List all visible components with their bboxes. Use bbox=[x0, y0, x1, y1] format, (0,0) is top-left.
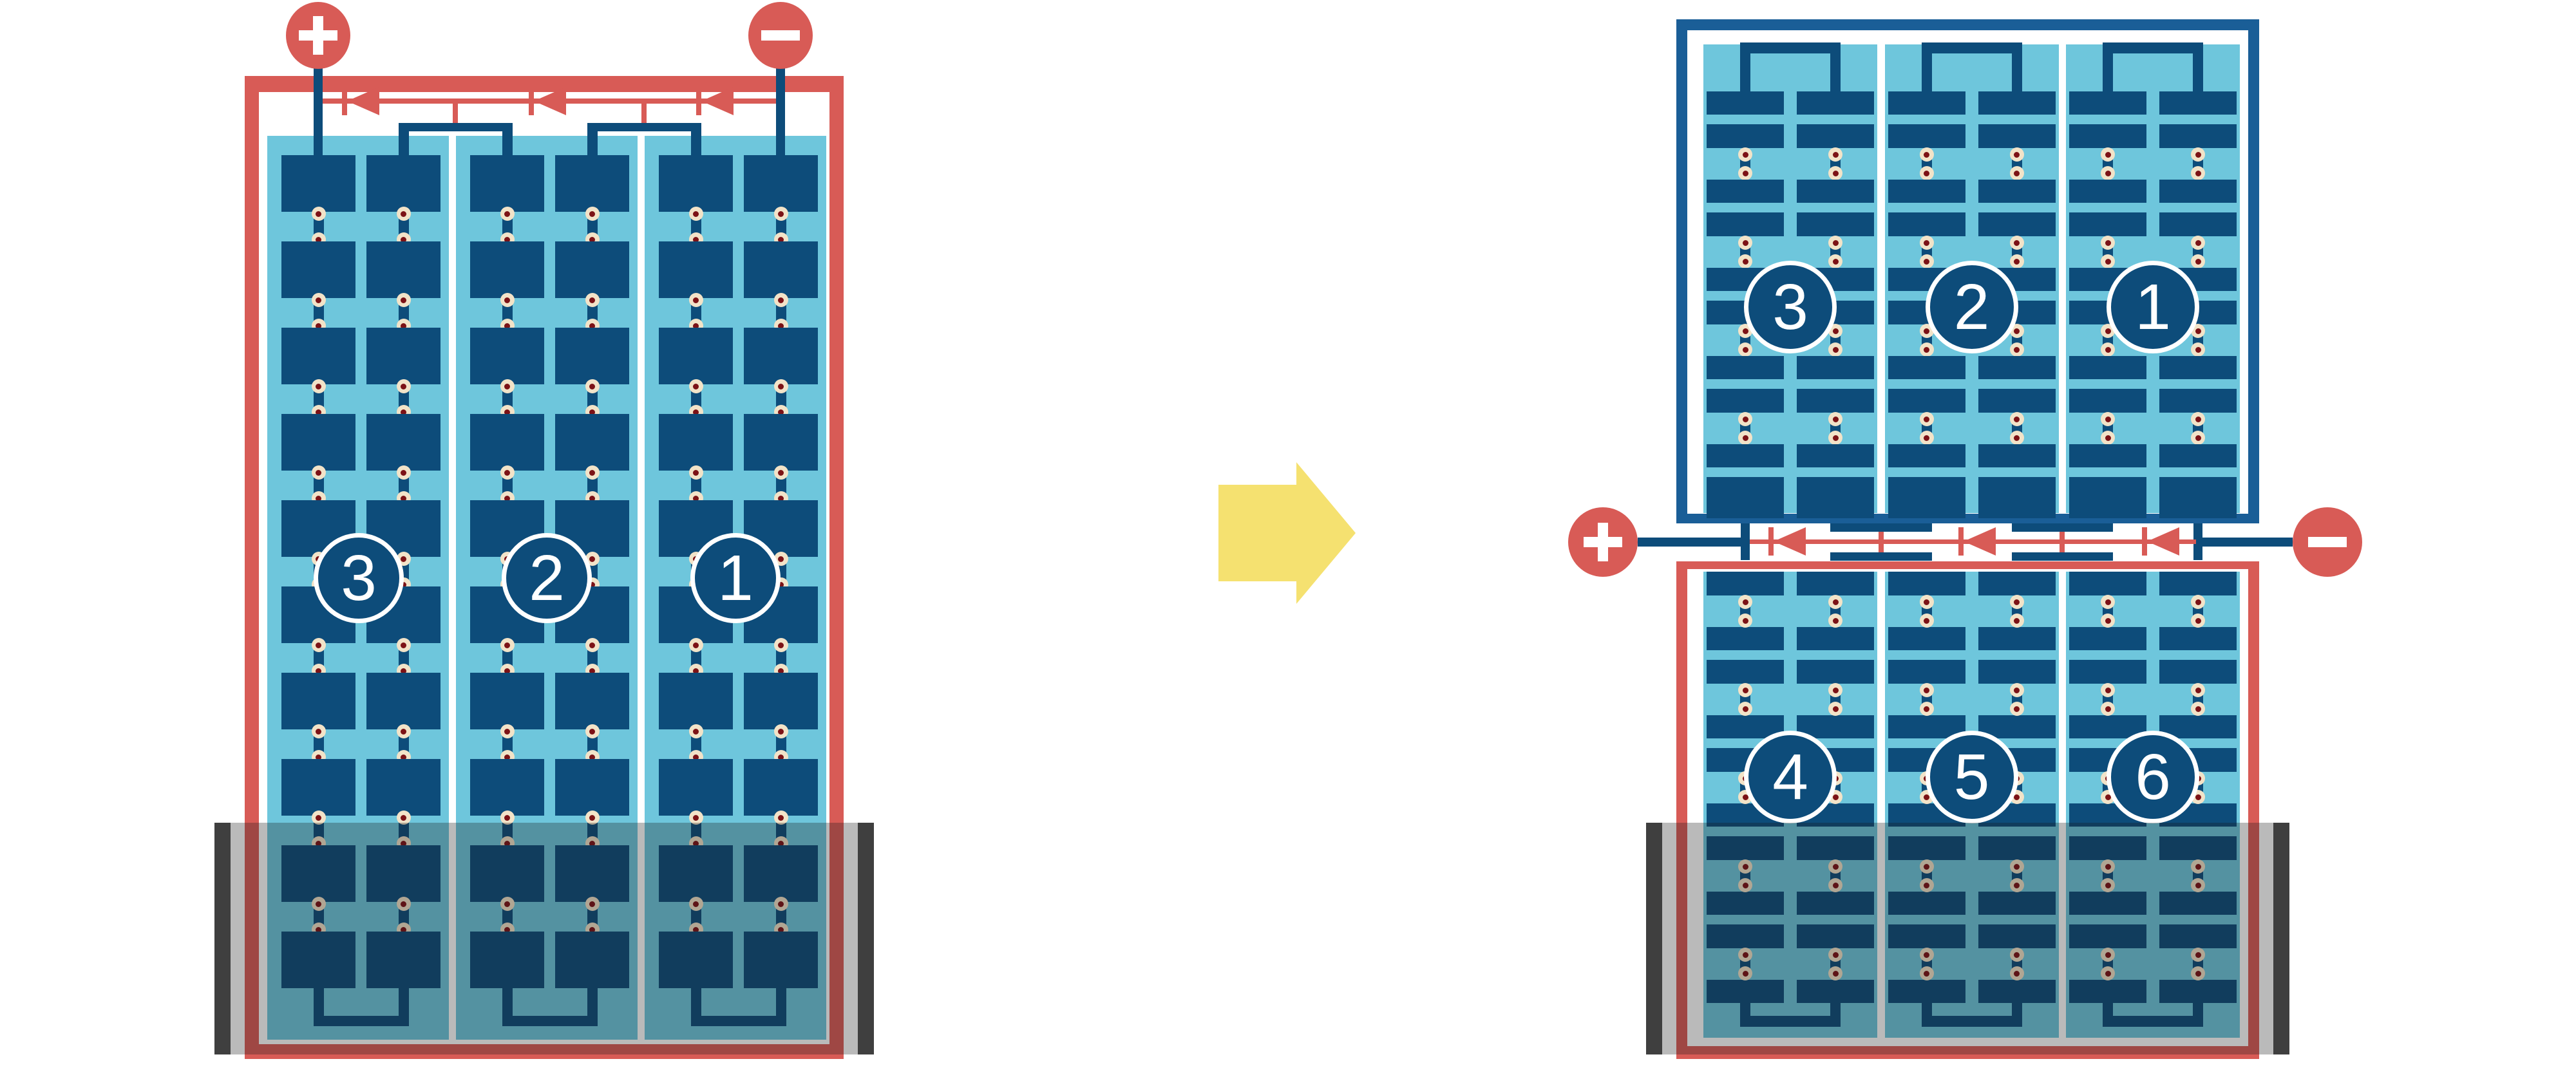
diagram-canvas: 321 321 456 bbox=[0, 0, 2576, 1068]
solar-cell bbox=[1707, 180, 1784, 203]
solar-cell bbox=[366, 673, 440, 729]
solar-cell bbox=[2159, 572, 2237, 595]
solder-dot-core bbox=[1924, 706, 1929, 712]
solar-cell bbox=[1797, 660, 1874, 684]
solar-cell bbox=[1707, 444, 1784, 467]
solar-cell bbox=[1797, 572, 1874, 595]
solar-cell bbox=[470, 241, 544, 298]
diode-triangle-icon bbox=[534, 87, 566, 115]
solar-cell bbox=[1978, 572, 2056, 595]
top-busbar bbox=[587, 123, 701, 131]
solar-cell bbox=[1707, 356, 1784, 379]
solder-dot-core bbox=[589, 642, 595, 648]
solder-dot-core bbox=[2105, 435, 2111, 441]
solar-cell bbox=[1797, 477, 1874, 518]
solder-dot-core bbox=[1924, 688, 1929, 693]
solder-dot-core bbox=[2195, 171, 2201, 176]
solder-dot-core bbox=[401, 297, 406, 303]
solder-dot-core bbox=[2195, 347, 2201, 353]
solder-dot-core bbox=[2014, 259, 2020, 265]
solder-dot-core bbox=[401, 642, 406, 648]
solder-dot-core bbox=[2014, 599, 2020, 605]
solder-dot-core bbox=[1743, 688, 1748, 693]
shadow-band bbox=[1646, 823, 2289, 1054]
shadow-end-cap bbox=[858, 823, 874, 1054]
solar-cell bbox=[2069, 444, 2146, 467]
terminal-lead bbox=[776, 66, 785, 156]
solder-dot-core bbox=[504, 815, 510, 821]
diode-cathode-bar bbox=[2142, 527, 2147, 556]
terminal-sign-bar bbox=[761, 30, 800, 41]
solder-dot-core bbox=[589, 556, 595, 562]
solar-cell bbox=[281, 241, 355, 298]
solder-dot-core bbox=[2195, 259, 2201, 265]
solder-dot-core bbox=[1833, 794, 1839, 800]
solar-cell bbox=[2159, 477, 2237, 518]
solder-dot-core bbox=[778, 815, 784, 821]
diode-cathode-bar bbox=[1768, 527, 1774, 556]
string-number-badge: 1 bbox=[2107, 261, 2199, 353]
diode-triangle-icon bbox=[347, 87, 379, 115]
solar-cell bbox=[1978, 91, 2056, 115]
solder-dot-core bbox=[1743, 347, 1748, 353]
shadow-end-cap bbox=[214, 823, 231, 1054]
solder-dot-core bbox=[401, 729, 406, 735]
solder-dot-core bbox=[1743, 328, 1748, 334]
solder-dot-core bbox=[2105, 688, 2111, 693]
solar-cell bbox=[2069, 627, 2146, 650]
solar-cell bbox=[1888, 180, 1965, 203]
solder-dot-core bbox=[693, 470, 699, 476]
terminal-sign-bar bbox=[1598, 523, 1608, 561]
solder-dot-core bbox=[2014, 706, 2020, 712]
solar-cell bbox=[2159, 124, 2237, 148]
solder-dot-core bbox=[2014, 152, 2020, 158]
solar-cell bbox=[2159, 91, 2237, 115]
solar-cell bbox=[2159, 660, 2237, 684]
terminal-lead bbox=[1638, 538, 1741, 547]
terminal-sign-bar bbox=[313, 16, 323, 55]
module-frame bbox=[1676, 19, 1687, 523]
solar-cell bbox=[1707, 389, 1784, 413]
solar-cell bbox=[1707, 572, 1784, 595]
solar-cell bbox=[555, 673, 629, 729]
solder-dot-core bbox=[2195, 688, 2201, 693]
solder-dot-core bbox=[1924, 171, 1929, 176]
solar-cell bbox=[1707, 627, 1784, 650]
solder-dot-core bbox=[2014, 171, 2020, 176]
string-number-badge: 5 bbox=[1926, 731, 2018, 823]
solder-dot-core bbox=[1924, 152, 1929, 158]
solder-dot-core bbox=[778, 211, 784, 217]
interconnect-tab bbox=[2012, 552, 2114, 561]
diode-cathode-bar bbox=[1958, 527, 1964, 556]
solar-cell bbox=[1707, 124, 1784, 148]
solder-dot-core bbox=[2014, 688, 2020, 693]
top-busbar-leg bbox=[399, 131, 409, 156]
solder-dot-core bbox=[1743, 435, 1748, 441]
string-number-badge: 3 bbox=[1744, 261, 1837, 353]
module-frame bbox=[2248, 19, 2259, 523]
terminal-lead bbox=[2202, 538, 2293, 547]
string-number-badge: 6 bbox=[2107, 731, 2199, 823]
solar-cell bbox=[1707, 91, 1784, 115]
solder-dot-core bbox=[1924, 417, 1929, 422]
solder-dot-core bbox=[316, 729, 321, 735]
solder-dot-core bbox=[1833, 688, 1839, 693]
solder-dot-core bbox=[693, 384, 699, 389]
solder-dot-core bbox=[2105, 152, 2111, 158]
solder-dot-core bbox=[2105, 240, 2111, 246]
solder-dot-core bbox=[1833, 347, 1839, 353]
solder-dot-core bbox=[2195, 417, 2201, 422]
solar-cell bbox=[1978, 124, 2056, 148]
solder-dot-core bbox=[2105, 171, 2111, 176]
string-number-badge: 2 bbox=[1926, 261, 2018, 353]
solar-cell bbox=[1797, 444, 1874, 467]
solder-dot-core bbox=[589, 470, 595, 476]
solar-cell bbox=[366, 155, 440, 212]
shadow-end-cap bbox=[2273, 823, 2289, 1054]
diode-cathode-bar bbox=[342, 87, 347, 115]
diode-cathode-bar bbox=[529, 87, 534, 115]
diode-junction-stub bbox=[453, 104, 458, 124]
solder-dot-core bbox=[589, 297, 595, 303]
solar-cell bbox=[2069, 180, 2146, 203]
solar-cell bbox=[470, 673, 544, 729]
solder-dot-core bbox=[2105, 706, 2111, 712]
solar-cell bbox=[1888, 212, 1965, 236]
solar-cell bbox=[2069, 660, 2146, 684]
solar-cell bbox=[281, 155, 355, 212]
solder-dot-core bbox=[2195, 152, 2201, 158]
arrow-tail bbox=[1218, 485, 1296, 581]
top-busbar-leg bbox=[691, 131, 701, 156]
solder-dot-core bbox=[778, 384, 784, 389]
solder-dot-core bbox=[589, 211, 595, 217]
solar-cell bbox=[281, 759, 355, 816]
solder-dot-core bbox=[2195, 618, 2201, 624]
diode-triangle-icon bbox=[701, 87, 734, 115]
diode-junction-stub bbox=[2060, 532, 2065, 552]
top-busbar-leg bbox=[2193, 53, 2203, 91]
solder-dot-core bbox=[504, 642, 510, 648]
top-busbar bbox=[1922, 42, 2022, 53]
solar-cell bbox=[470, 759, 544, 816]
solar-cell bbox=[1978, 627, 2056, 650]
solar-cell bbox=[1797, 212, 1874, 236]
solar-cell bbox=[659, 673, 733, 729]
solder-dot-core bbox=[504, 470, 510, 476]
solder-dot-core bbox=[2195, 240, 2201, 246]
solar-cell bbox=[281, 328, 355, 384]
solar-cell bbox=[659, 414, 733, 471]
solar-cell bbox=[470, 328, 544, 384]
solder-dot-core bbox=[2195, 706, 2201, 712]
solar-cell bbox=[659, 241, 733, 298]
solar-cell bbox=[366, 328, 440, 384]
solar-cell bbox=[1888, 91, 1965, 115]
solar-cell bbox=[470, 155, 544, 212]
interconnect-tab bbox=[2012, 523, 2114, 532]
solder-dot-core bbox=[316, 815, 321, 821]
solder-dot-core bbox=[693, 211, 699, 217]
solar-cell bbox=[1888, 627, 1965, 650]
solder-dot-core bbox=[2195, 794, 2201, 800]
solder-dot-core bbox=[2014, 347, 2020, 353]
solder-dot-core bbox=[2195, 435, 2201, 441]
solder-dot-core bbox=[693, 815, 699, 821]
solder-dot-core bbox=[2014, 435, 2020, 441]
solar-cell bbox=[1978, 180, 2056, 203]
solder-dot-core bbox=[693, 642, 699, 648]
solder-dot-core bbox=[316, 297, 321, 303]
solder-dot-core bbox=[316, 642, 321, 648]
interconnect-tab bbox=[1830, 523, 1932, 532]
arrow-head bbox=[1296, 462, 1356, 604]
solder-dot-core bbox=[316, 211, 321, 217]
solder-dot-core bbox=[504, 729, 510, 735]
solder-dot-core bbox=[2105, 599, 2111, 605]
interconnect-tab bbox=[1830, 552, 1932, 561]
top-busbar bbox=[1740, 42, 1841, 53]
solder-dot-core bbox=[1924, 259, 1929, 265]
solar-cell bbox=[281, 673, 355, 729]
solar-cell bbox=[366, 241, 440, 298]
solder-dot-core bbox=[504, 211, 510, 217]
solder-dot-core bbox=[1833, 328, 1839, 334]
solder-dot-core bbox=[589, 815, 595, 821]
solder-dot-core bbox=[316, 470, 321, 476]
solder-dot-core bbox=[589, 384, 595, 389]
solar-cell bbox=[1888, 389, 1965, 413]
solar-cell bbox=[1888, 444, 1965, 467]
solar-cell bbox=[1797, 627, 1874, 650]
string-number-badge: 2 bbox=[502, 533, 592, 623]
shadow-end-cap bbox=[1646, 823, 1662, 1054]
solder-dot-core bbox=[2105, 259, 2111, 265]
solar-cell bbox=[659, 155, 733, 212]
solar-cell bbox=[744, 328, 818, 384]
solar-cell bbox=[470, 414, 544, 471]
solar-cell bbox=[1888, 572, 1965, 595]
solar-cell bbox=[1888, 124, 1965, 148]
solder-dot-core bbox=[316, 384, 321, 389]
solder-dot-core bbox=[504, 297, 510, 303]
string-number-badge: 3 bbox=[314, 533, 404, 623]
top-busbar-leg bbox=[2012, 53, 2022, 91]
solar-cell bbox=[2069, 477, 2146, 518]
solder-dot-core bbox=[1924, 618, 1929, 624]
solar-cell bbox=[281, 414, 355, 471]
solar-cell bbox=[555, 241, 629, 298]
solder-dot-core bbox=[401, 211, 406, 217]
solder-dot-core bbox=[1924, 328, 1929, 334]
solder-dot-core bbox=[1833, 618, 1839, 624]
solder-dot-core bbox=[401, 470, 406, 476]
string-number-badge: 4 bbox=[1744, 731, 1837, 823]
solar-cell bbox=[659, 759, 733, 816]
solder-dot-core bbox=[778, 556, 784, 562]
solder-dot-core bbox=[401, 815, 406, 821]
top-busbar bbox=[399, 123, 513, 131]
solar-cell bbox=[744, 414, 818, 471]
solar-cell bbox=[1978, 660, 2056, 684]
solar-cell bbox=[1978, 212, 2056, 236]
solar-cell bbox=[1978, 356, 2056, 379]
solder-dot-core bbox=[2195, 328, 2201, 334]
solder-dot-core bbox=[2014, 618, 2020, 624]
solder-dot-core bbox=[1743, 152, 1748, 158]
top-busbar-leg bbox=[2103, 53, 2113, 91]
solder-dot-core bbox=[1833, 435, 1839, 441]
top-busbar-leg bbox=[1830, 53, 1841, 91]
solder-dot-core bbox=[1924, 599, 1929, 605]
solder-dot-core bbox=[1833, 152, 1839, 158]
solder-dot-core bbox=[401, 384, 406, 389]
solar-cell bbox=[744, 241, 818, 298]
solder-dot-core bbox=[1924, 240, 1929, 246]
top-busbar-leg bbox=[502, 131, 513, 156]
solar-cell bbox=[2159, 180, 2237, 203]
top-busbar bbox=[2103, 42, 2203, 53]
solder-dot-core bbox=[2105, 417, 2111, 422]
shadow-band bbox=[214, 823, 874, 1054]
solar-cell bbox=[2069, 212, 2146, 236]
solar-cell bbox=[2069, 124, 2146, 148]
solar-cell bbox=[2069, 572, 2146, 595]
solar-cell bbox=[2159, 356, 2237, 379]
solder-dot-core bbox=[2014, 240, 2020, 246]
solder-dot-core bbox=[1743, 417, 1748, 422]
solar-cell bbox=[744, 673, 818, 729]
solder-dot-core bbox=[1833, 599, 1839, 605]
solder-dot-core bbox=[2105, 618, 2111, 624]
solar-cell bbox=[659, 328, 733, 384]
solar-cell bbox=[1797, 389, 1874, 413]
solar-cell bbox=[555, 328, 629, 384]
solder-dot-core bbox=[1924, 435, 1929, 441]
solar-cell bbox=[1707, 212, 1784, 236]
solder-dot-core bbox=[1833, 706, 1839, 712]
solder-dot-core bbox=[778, 470, 784, 476]
solder-dot-core bbox=[1743, 259, 1748, 265]
solder-dot-core bbox=[2014, 417, 2020, 422]
terminal-tab bbox=[1741, 523, 1750, 560]
solder-dot-core bbox=[1743, 171, 1748, 176]
solar-cell bbox=[2069, 356, 2146, 379]
solder-dot-core bbox=[1743, 240, 1748, 246]
solder-dot-core bbox=[778, 642, 784, 648]
diode-triangle-icon bbox=[1774, 527, 1806, 556]
solder-dot-core bbox=[2105, 328, 2111, 334]
solder-dot-core bbox=[401, 556, 406, 562]
solar-cell bbox=[2159, 627, 2237, 650]
solar-cell bbox=[2159, 212, 2237, 236]
diode-junction-stub bbox=[1879, 532, 1884, 552]
solar-cell bbox=[1797, 180, 1874, 203]
solder-dot-core bbox=[1833, 171, 1839, 176]
solar-cell bbox=[2069, 389, 2146, 413]
solder-dot-core bbox=[2195, 599, 2201, 605]
solar-cell bbox=[366, 759, 440, 816]
module-frame bbox=[1676, 19, 2259, 30]
solar-cell bbox=[2159, 444, 2237, 467]
string-number-badge: 1 bbox=[690, 533, 781, 623]
diode-cathode-bar bbox=[696, 87, 701, 115]
solar-cell bbox=[555, 155, 629, 212]
module-frame bbox=[1676, 561, 2259, 569]
solar-cell bbox=[1978, 477, 2056, 518]
solar-cell bbox=[555, 414, 629, 471]
solar-cell bbox=[1707, 477, 1784, 518]
solder-dot-core bbox=[1833, 259, 1839, 265]
solar-cell bbox=[1978, 389, 2056, 413]
terminal-sign-bar bbox=[2308, 537, 2347, 547]
solder-dot-core bbox=[2014, 328, 2020, 334]
solder-dot-core bbox=[693, 729, 699, 735]
solar-cell bbox=[1797, 91, 1874, 115]
top-busbar-leg bbox=[587, 131, 598, 156]
solar-cell bbox=[1888, 660, 1965, 684]
solar-cell bbox=[744, 155, 818, 212]
solar-cell bbox=[744, 759, 818, 816]
solder-dot-core bbox=[778, 297, 784, 303]
top-busbar-leg bbox=[1740, 53, 1750, 91]
solar-cell bbox=[1978, 444, 2056, 467]
solder-dot-core bbox=[1924, 347, 1929, 353]
solder-dot-core bbox=[1743, 618, 1748, 624]
solar-cell bbox=[555, 759, 629, 816]
solder-dot-core bbox=[778, 729, 784, 735]
solder-dot-core bbox=[589, 729, 595, 735]
solder-dot-core bbox=[1833, 417, 1839, 422]
solder-dot-core bbox=[1833, 240, 1839, 246]
solar-cell bbox=[1797, 124, 1874, 148]
solder-dot-core bbox=[693, 297, 699, 303]
solder-dot-core bbox=[504, 384, 510, 389]
solar-cell bbox=[1797, 356, 1874, 379]
solder-dot-core bbox=[1743, 599, 1748, 605]
terminal-lead bbox=[314, 66, 323, 156]
solar-cell bbox=[2069, 91, 2146, 115]
solar-cell bbox=[1888, 356, 1965, 379]
solar-cell bbox=[366, 414, 440, 471]
top-busbar-leg bbox=[1922, 53, 1932, 91]
solar-cell bbox=[1707, 660, 1784, 684]
diode-triangle-icon bbox=[2147, 527, 2179, 556]
diode-triangle-icon bbox=[1964, 527, 1996, 556]
solder-dot-core bbox=[2105, 347, 2111, 353]
solder-dot-core bbox=[1743, 706, 1748, 712]
solar-cell bbox=[1888, 477, 1965, 518]
diode-junction-stub bbox=[641, 104, 647, 124]
solar-cell bbox=[2159, 389, 2237, 413]
